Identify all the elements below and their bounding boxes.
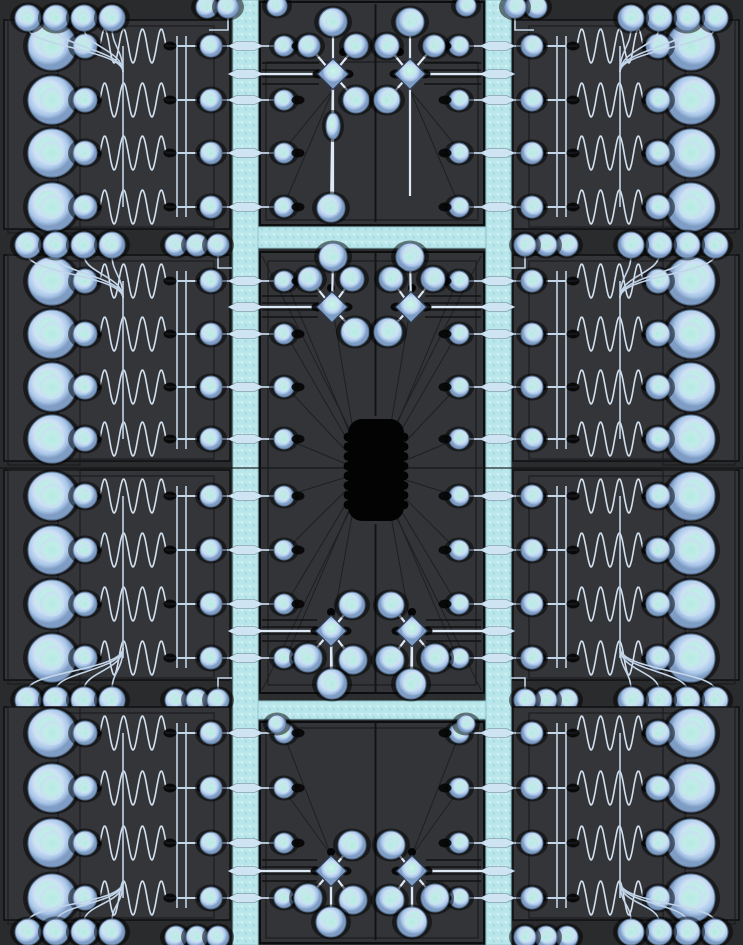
- pad-core: [79, 201, 91, 213]
- anchor-blob: [164, 839, 177, 848]
- pad-core: [526, 782, 537, 793]
- pad-core: [40, 776, 65, 801]
- pad-core: [461, 1, 471, 11]
- pad-core: [303, 40, 314, 51]
- pad-core: [40, 195, 65, 220]
- anchor-blob: [164, 729, 177, 738]
- pad-core: [519, 239, 530, 250]
- pad-core: [454, 329, 464, 339]
- pad-core: [77, 238, 91, 252]
- pad-core: [624, 11, 638, 25]
- pad-core: [49, 11, 63, 25]
- left-resonator-column: [4, 0, 244, 945]
- resonator-panel: [509, 707, 739, 945]
- pad-core: [679, 375, 704, 400]
- pad-core: [652, 147, 664, 159]
- pad-core: [40, 375, 65, 400]
- pad-core: [561, 694, 572, 705]
- anchor-blob: [292, 96, 305, 105]
- pad-core: [540, 694, 551, 705]
- pad-core: [708, 11, 722, 25]
- pad-core: [652, 652, 664, 664]
- anchor-blob: [164, 492, 177, 501]
- pad-core: [205, 544, 216, 555]
- anchor-blob: [292, 729, 305, 738]
- pad-core: [679, 88, 704, 113]
- pad-core: [679, 776, 704, 801]
- pad-core: [652, 381, 664, 393]
- pad-core: [279, 599, 289, 609]
- pad-core: [21, 238, 35, 252]
- pad-core: [385, 273, 397, 285]
- pad-core: [191, 694, 202, 705]
- pad-core: [652, 693, 666, 707]
- pad-core: [345, 838, 360, 853]
- pad-core: [454, 491, 464, 501]
- anchor-blob: [439, 839, 452, 848]
- pad-core: [222, 1, 233, 12]
- pad-core: [77, 693, 91, 707]
- anchor-blob: [567, 894, 580, 903]
- pad-core: [40, 88, 65, 113]
- pad-core: [212, 239, 223, 250]
- pad-core: [454, 148, 464, 158]
- pad-core: [170, 694, 181, 705]
- pad-core: [652, 238, 666, 252]
- pad-core: [624, 238, 638, 252]
- pad-core: [679, 141, 704, 166]
- pad-core: [279, 202, 289, 212]
- anchor-blob: [439, 203, 452, 212]
- anchor-blob: [164, 277, 177, 286]
- pad-core: [205, 837, 216, 848]
- pad-core: [526, 147, 537, 158]
- pad-core: [381, 40, 393, 52]
- pad-core: [279, 434, 289, 444]
- pad-core: [205, 275, 216, 286]
- pad-core: [652, 490, 664, 502]
- pad-core: [205, 147, 216, 158]
- pad-core: [679, 322, 704, 347]
- pad-core: [383, 653, 398, 668]
- pad-core: [272, 719, 281, 728]
- pad-core: [40, 721, 65, 746]
- pad-core: [679, 484, 704, 509]
- pad-core: [40, 592, 65, 617]
- anchor-blob: [164, 96, 177, 105]
- pad-core: [428, 891, 443, 906]
- pad-core: [212, 931, 223, 942]
- pad-core: [454, 276, 464, 286]
- pad-core: [346, 893, 361, 908]
- anchor-blob: [439, 600, 452, 609]
- pad-core: [40, 141, 65, 166]
- pad-core: [526, 201, 537, 212]
- pad-core: [79, 837, 91, 849]
- pad-core: [79, 652, 91, 664]
- pad-core: [212, 694, 223, 705]
- pad-core: [679, 831, 704, 856]
- pad-core: [708, 925, 722, 939]
- pad-core: [624, 925, 638, 939]
- pad-core: [383, 893, 398, 908]
- pad-core: [348, 325, 363, 340]
- pad-core: [526, 598, 537, 609]
- pad-core: [652, 544, 664, 556]
- pad-core: [454, 382, 464, 392]
- pad-core: [526, 275, 537, 286]
- pad-core: [279, 545, 289, 555]
- anchor-blob: [567, 330, 580, 339]
- pad-core: [540, 239, 551, 250]
- pad-core: [652, 925, 666, 939]
- pad-core: [324, 201, 339, 216]
- pad-core: [526, 381, 537, 392]
- pad-core: [428, 651, 443, 666]
- pad-core: [279, 491, 289, 501]
- anchor-blob: [292, 600, 305, 609]
- pad-core: [21, 925, 35, 939]
- pad-core: [519, 931, 530, 942]
- pad-core: [21, 693, 35, 707]
- anchor-blob: [439, 492, 452, 501]
- pad-core: [205, 94, 216, 105]
- anchor-blob: [164, 654, 177, 663]
- resonator-panel: [509, 470, 739, 716]
- pad-core: [679, 427, 704, 452]
- pad-core: [680, 925, 694, 939]
- pad-core: [49, 238, 63, 252]
- pad-core: [652, 837, 664, 849]
- anchor-blob: [567, 42, 580, 51]
- pad-core: [170, 931, 181, 942]
- anchor-blob: [439, 149, 452, 158]
- pad-core: [526, 40, 537, 51]
- chip-die: [348, 419, 404, 521]
- pad-core: [381, 325, 396, 340]
- pad-core: [680, 238, 694, 252]
- pad-core: [40, 34, 65, 59]
- oval-pad: [326, 113, 340, 139]
- pad-core: [205, 40, 216, 51]
- pad-core: [454, 838, 464, 848]
- anchor-blob: [567, 729, 580, 738]
- pad-core: [454, 41, 464, 51]
- pad-core: [404, 914, 420, 930]
- pad-core: [350, 40, 362, 52]
- horizontal-channel: [258, 227, 486, 248]
- pad-core: [279, 838, 289, 848]
- anchor-blob: [292, 203, 305, 212]
- pad-core: [680, 11, 694, 25]
- anchor-blob: [567, 784, 580, 793]
- pad-core: [526, 433, 537, 444]
- pad-core: [279, 382, 289, 392]
- anchor-blob: [439, 330, 452, 339]
- pad-core: [530, 1, 541, 12]
- pad-core: [205, 727, 216, 738]
- pad-core: [279, 276, 289, 286]
- anchor-blob: [439, 383, 452, 392]
- pad-core: [170, 239, 181, 250]
- anchor-blob: [292, 546, 305, 555]
- pad-core: [272, 1, 282, 11]
- pad-core: [40, 831, 65, 856]
- pad-core: [526, 544, 537, 555]
- via-dot: [408, 284, 416, 292]
- pad-core: [205, 201, 216, 212]
- anchor-blob: [567, 546, 580, 555]
- pad-core: [21, 11, 35, 25]
- pad-core: [454, 434, 464, 444]
- pad-core: [79, 433, 91, 445]
- anchor-blob: [164, 330, 177, 339]
- pad-core: [652, 94, 664, 106]
- pad-core: [105, 238, 119, 252]
- anchor-blob: [439, 546, 452, 555]
- pad-core: [40, 646, 65, 671]
- horizontal-channel: [258, 701, 486, 719]
- pad-core: [40, 322, 65, 347]
- pad-core: [205, 433, 216, 444]
- pad-core: [279, 329, 289, 339]
- pad-core: [454, 783, 464, 793]
- pad-core: [326, 15, 341, 30]
- pad-core: [679, 721, 704, 746]
- pad-core: [301, 891, 316, 906]
- pad-core: [79, 544, 91, 556]
- right-resonator-column: [499, 0, 739, 945]
- pad-core: [652, 782, 664, 794]
- pad-core: [679, 592, 704, 617]
- anchor-blob: [292, 784, 305, 793]
- anchor-blob: [292, 839, 305, 848]
- pad-core: [205, 490, 216, 501]
- resonator-panel: [4, 230, 234, 466]
- anchor-blob: [164, 784, 177, 793]
- anchor-blob: [439, 729, 452, 738]
- resonator-panel: [4, 470, 234, 716]
- pad-core: [40, 484, 65, 509]
- anchor-blob: [292, 492, 305, 501]
- pad-core: [679, 538, 704, 563]
- anchor-blob: [567, 600, 580, 609]
- resonator-panel: [4, 0, 244, 234]
- pad-core: [384, 838, 399, 853]
- anchor-blob: [439, 435, 452, 444]
- pad-core: [79, 328, 91, 340]
- pad-core: [279, 95, 289, 105]
- anchor-blob: [567, 492, 580, 501]
- pad-core: [540, 931, 551, 942]
- pad-core: [40, 269, 65, 294]
- pad-core: [79, 94, 91, 106]
- pad-core: [403, 15, 418, 30]
- anchor-blob: [567, 96, 580, 105]
- pad-core: [561, 931, 572, 942]
- pad-core: [326, 250, 341, 265]
- pad-core: [526, 837, 537, 848]
- anchor-blob: [567, 654, 580, 663]
- pad-core: [105, 925, 119, 939]
- pad-core: [279, 783, 289, 793]
- anchor-blob: [439, 96, 452, 105]
- pad-core: [279, 893, 289, 903]
- pad-core: [454, 95, 464, 105]
- pad-core: [346, 653, 361, 668]
- pad-core: [526, 727, 537, 738]
- pad-core: [652, 328, 664, 340]
- vertical-channel: [486, 0, 511, 945]
- anchor-blob: [292, 435, 305, 444]
- pad-core: [652, 433, 664, 445]
- pad-core: [105, 693, 119, 707]
- pad-core: [526, 328, 537, 339]
- pad-core: [454, 893, 464, 903]
- pad-core: [79, 598, 91, 610]
- pad-core: [519, 694, 530, 705]
- pad-core: [349, 93, 363, 107]
- pad-core: [454, 653, 464, 663]
- pad-core: [428, 40, 439, 51]
- anchor-blob: [164, 546, 177, 555]
- pad-core: [49, 925, 63, 939]
- anchor-blob: [292, 149, 305, 158]
- pad-core: [77, 11, 91, 25]
- anchor-blob: [567, 383, 580, 392]
- pad-core: [679, 269, 704, 294]
- pad-core: [324, 676, 340, 692]
- pad-core: [205, 328, 216, 339]
- pad-core: [384, 598, 398, 612]
- pad-core: [403, 676, 419, 692]
- pad-core: [301, 651, 316, 666]
- pad-core: [652, 727, 664, 739]
- pad-core: [708, 693, 722, 707]
- anchor-blob: [164, 435, 177, 444]
- anchor-blob: [164, 42, 177, 51]
- anchor-blob: [164, 894, 177, 903]
- via-dot: [327, 284, 335, 292]
- pad-core: [79, 727, 91, 739]
- pad-core: [79, 490, 91, 502]
- pad-core: [526, 94, 537, 105]
- anchor-blob: [567, 203, 580, 212]
- resonator-panel: [4, 707, 234, 945]
- anchor-blob: [292, 383, 305, 392]
- anchor-blob: [567, 839, 580, 848]
- pad-core: [403, 250, 418, 265]
- pad-core: [279, 41, 289, 51]
- die-layout-canvas: [0, 0, 743, 945]
- pad-core: [191, 239, 202, 250]
- pad-core: [679, 646, 704, 671]
- pad-core: [279, 148, 289, 158]
- pad-core: [79, 147, 91, 159]
- anchor-blob: [567, 149, 580, 158]
- pad-core: [454, 545, 464, 555]
- pad-core: [652, 11, 666, 25]
- pad-core: [79, 782, 91, 794]
- anchor-blob: [164, 383, 177, 392]
- anchor-blob: [567, 277, 580, 286]
- pad-core: [652, 201, 664, 213]
- anchor-blob: [164, 203, 177, 212]
- resonator-panel: [499, 0, 739, 234]
- pad-core: [526, 892, 537, 903]
- pad-core: [279, 653, 289, 663]
- pad-core: [205, 652, 216, 663]
- pad-core: [40, 427, 65, 452]
- pad-core: [624, 693, 638, 707]
- pad-core: [680, 693, 694, 707]
- pad-core: [461, 719, 470, 728]
- pad-core: [708, 238, 722, 252]
- anchor-blob: [567, 435, 580, 444]
- pad-core: [427, 273, 439, 285]
- vertical-channel: [233, 0, 258, 945]
- pad-core: [201, 1, 212, 12]
- anchor-blob: [164, 600, 177, 609]
- pad-core: [105, 11, 119, 25]
- chip-cavity: [344, 419, 409, 521]
- anchor-blob: [292, 330, 305, 339]
- pad-core: [561, 239, 572, 250]
- pad-core: [40, 538, 65, 563]
- pad-core: [79, 381, 91, 393]
- pad-core: [652, 598, 664, 610]
- pad-core: [454, 599, 464, 609]
- chip-die-layout: [0, 0, 743, 945]
- pad-core: [205, 782, 216, 793]
- pad-core: [346, 273, 358, 285]
- pad-core: [205, 892, 216, 903]
- pad-core: [205, 598, 216, 609]
- pad-core: [49, 693, 63, 707]
- pad-core: [526, 490, 537, 501]
- resonator-panel: [509, 230, 739, 466]
- anchor-blob: [439, 784, 452, 793]
- anchor-blob: [164, 149, 177, 158]
- pad-core: [526, 652, 537, 663]
- pad-core: [454, 202, 464, 212]
- pad-core: [679, 195, 704, 220]
- pad-core: [191, 931, 202, 942]
- pad-core: [205, 381, 216, 392]
- pad-core: [304, 273, 316, 285]
- pad-core: [380, 93, 394, 107]
- pad-core: [679, 34, 704, 59]
- pad-core: [323, 914, 339, 930]
- pad-core: [77, 925, 91, 939]
- pad-core: [509, 1, 520, 12]
- pad-core: [345, 598, 359, 612]
